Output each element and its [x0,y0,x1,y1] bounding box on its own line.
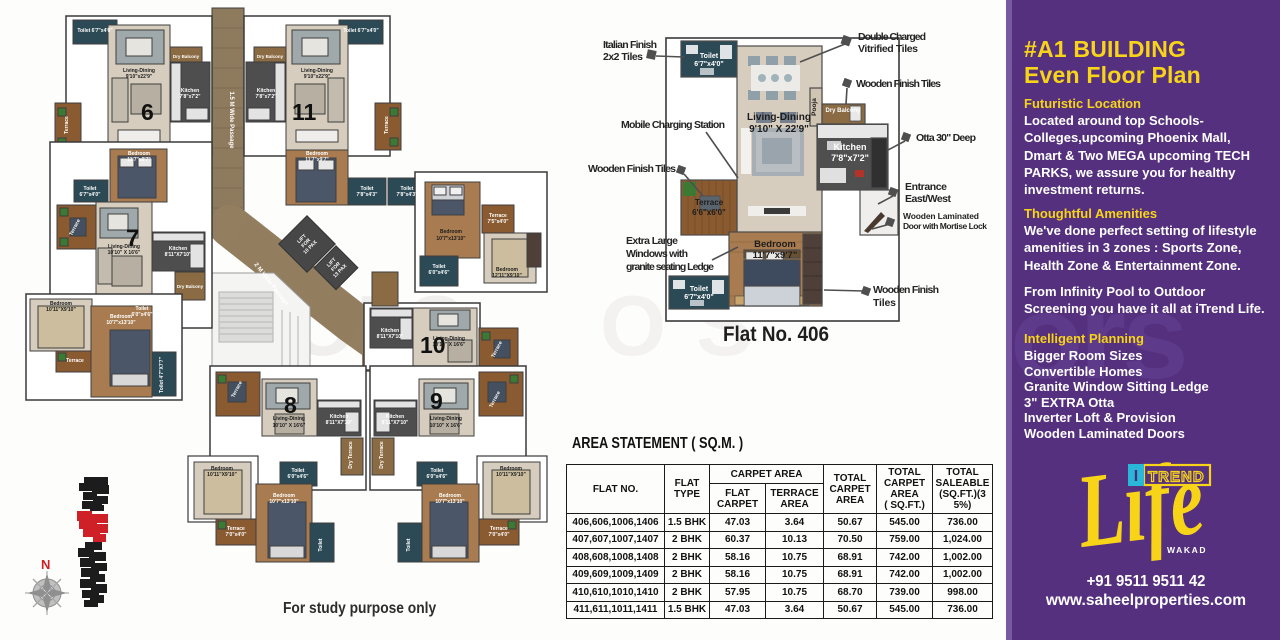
svg-text:Dry Terrace: Dry Terrace [348,441,354,469]
svg-text:10'7"x13'10": 10'7"x13'10" [269,499,299,505]
svg-text:7'5"x4'0": 7'5"x4'0" [487,219,509,225]
svg-text:Wooden Finish: Wooden Finish [873,284,939,296]
svg-text:9: 9 [430,388,443,414]
svg-text:8: 8 [284,392,297,418]
svg-text:Living-Dining: Living-Dining [430,416,462,422]
svg-text:10'7"x13'10": 10'7"x13'10" [436,236,466,242]
svg-text:I: I [1134,468,1138,485]
svg-text:11'7"x9'7": 11'7"x9'7" [127,157,151,163]
svg-text:6: 6 [141,99,154,125]
svg-text:1.5 M Wide Passage: 1.5 M Wide Passage [228,92,234,150]
svg-text:Toilet 6'7"x4'0": Toilet 6'7"x4'0" [77,28,113,34]
svg-text:12'11"X9'10": 12'11"X9'10" [492,273,522,279]
svg-text:11: 11 [292,99,317,125]
svg-text:Kitchen: Kitchen [833,142,866,152]
svg-text:9'10" X 22'9": 9'10" X 22'9" [749,124,809,135]
svg-text:Wooden Laminated: Wooden Laminated [903,211,979,221]
svg-text:7'0"x4'0": 7'0"x4'0" [225,532,247,538]
svg-text:10'10" X 16'6": 10'10" X 16'6" [108,250,141,256]
svg-text:10'7"x13'10": 10'7"x13'10" [106,320,136,326]
svg-text:Dry Balcony: Dry Balcony [177,284,204,289]
svg-text:7'8"x4'3": 7'8"x4'3" [356,192,378,198]
svg-text:TREND: TREND [1148,469,1205,486]
svg-text:6'0"x4'6": 6'0"x4'6" [428,270,450,276]
svg-text:Bedroom: Bedroom [440,229,463,235]
svg-text:Wooden Finish Tiles: Wooden Finish Tiles [856,78,941,90]
svg-text:10'10" X 16'6": 10'10" X 16'6" [430,423,463,429]
svg-text:Terrace: Terrace [695,198,724,207]
svg-text:Entrance: Entrance [905,181,947,193]
svg-text:Terrace: Terrace [66,358,84,364]
svg-text:10'11"X9'10": 10'11"X9'10" [496,472,526,478]
svg-text:7'8"x7'2": 7'8"x7'2" [179,94,201,100]
svg-text:6'6"x6'0": 6'6"x6'0" [692,208,726,217]
svg-text:Wooden Finish Tiles: Wooden Finish Tiles [588,163,676,175]
svg-text:Extra Large: Extra Large [626,235,678,247]
svg-text:6'7"x4'0": 6'7"x4'0" [694,61,723,68]
svg-text:East/West: East/West [905,193,952,205]
svg-text:Dry Terrace: Dry Terrace [379,441,385,469]
svg-text:6'0"x4'6": 6'0"x4'6" [426,474,448,480]
svg-text:For study purpose only: For study purpose only [283,600,437,617]
svg-text:WAKAD: WAKAD [1167,545,1207,555]
svg-text:Otta 30" Deep: Otta 30" Deep [916,132,976,144]
svg-text:9'10"x22'9": 9'10"x22'9" [304,74,331,80]
svg-text:8'11"X7'10": 8'11"X7'10" [326,420,353,426]
svg-text:Pooja: Pooja [811,98,818,116]
svg-text:6'0"x4'6": 6'0"x4'6" [131,312,153,318]
svg-text:Toilet: Toilet [690,286,709,293]
svg-text:Living-Dining: Living-Dining [747,112,811,123]
svg-text:9'10"x22'9": 9'10"x22'9" [126,74,153,80]
svg-text:7'8"x7'2": 7'8"x7'2" [831,153,869,163]
svg-text:2x2 Tiles: 2x2 Tiles [603,51,643,63]
svg-text:Mobile Charging Station: Mobile Charging Station [621,119,725,131]
svg-text:Toilet: Toilet [406,538,412,551]
svg-text:8'11"X7'10": 8'11"X7'10" [377,334,404,340]
svg-text:7'8"x4'3": 7'8"x4'3" [396,192,418,198]
svg-text:11'7"x9'7": 11'7"x9'7" [305,157,329,163]
svg-text:granite seating Ledge: granite seating Ledge [626,261,714,273]
svg-text:10'7"x13'10": 10'7"x13'10" [435,499,465,505]
svg-text:10'11"X9'10": 10'11"X9'10" [207,472,237,478]
svg-text:6'7"x4'0": 6'7"x4'0" [684,294,713,301]
svg-text:10'10" X 16'6": 10'10" X 16'6" [273,423,306,429]
svg-text:Living-Dining: Living-Dining [273,416,305,422]
svg-text:Double Charged: Double Charged [858,31,926,43]
svg-text:Dry Balcony: Dry Balcony [173,54,200,59]
svg-text:Terrace: Terrace [384,116,390,134]
svg-text:11'7"x9'7": 11'7"x9'7" [753,250,798,261]
svg-text:10'11"X9'10": 10'11"X9'10" [46,307,76,313]
svg-text:6'7"x4'0": 6'7"x4'0" [79,192,101,198]
svg-text:Toilet 4'7"X7'7": Toilet 4'7"X7'7" [159,356,165,393]
svg-text:Toilet: Toilet [700,53,719,60]
svg-text:7'0"x4'0": 7'0"x4'0" [488,532,510,538]
svg-text:Dry Balcony: Dry Balcony [257,54,284,59]
svg-text:Windows with: Windows with [626,248,688,260]
svg-text:6'0"x4'6": 6'0"x4'6" [287,474,309,480]
svg-text:Terrace: Terrace [64,116,70,134]
svg-text:Vitrified Tiles: Vitrified Tiles [858,43,918,55]
svg-text:8'11"X7'10": 8'11"X7'10" [165,252,192,258]
svg-text:Toilet: Toilet [318,538,324,551]
svg-text:Toilet 6'7"x4'0": Toilet 6'7"x4'0" [343,28,379,34]
svg-text:8'11"X7'10": 8'11"X7'10" [382,420,409,426]
svg-text:Flat No. 406: Flat No. 406 [723,323,829,346]
svg-text:7'8"x7'2": 7'8"x7'2" [255,94,277,100]
svg-text:Italian Finish: Italian Finish [603,39,657,51]
svg-text:Door with Mortise Lock: Door with Mortise Lock [903,221,987,231]
svg-text:Tiles: Tiles [873,297,896,309]
svg-text:Bedroom: Bedroom [754,239,796,250]
svg-text:N: N [41,557,50,572]
svg-text:10'10" X 16'6": 10'10" X 16'6" [433,342,466,348]
svg-text:Dry Balcony: Dry Balcony [825,108,861,114]
